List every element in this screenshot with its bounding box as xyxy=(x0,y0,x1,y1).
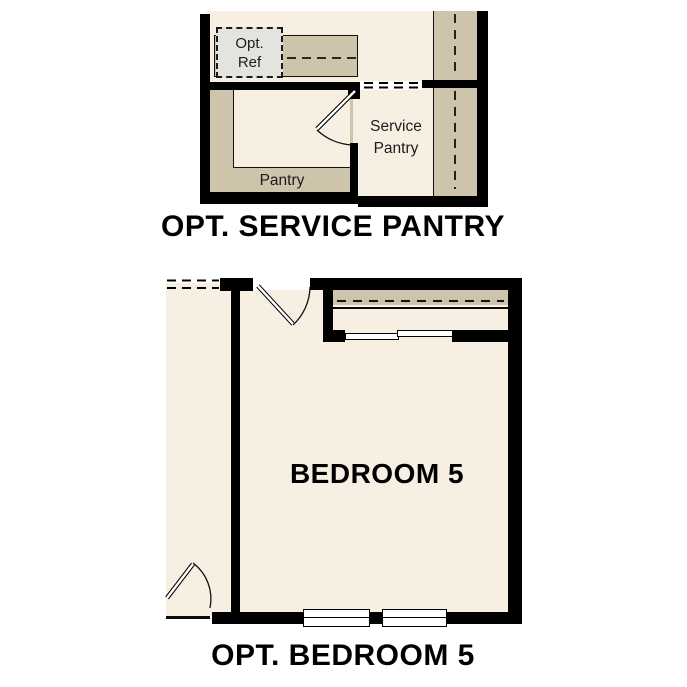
closet-bypass-door-1 xyxy=(345,333,399,340)
hallway-bottom-edge xyxy=(166,616,210,619)
wall-divider-right xyxy=(422,80,477,88)
hallway-floor xyxy=(166,283,231,616)
wall-right xyxy=(508,278,522,624)
right-cabinet-run xyxy=(433,11,477,197)
wall-kitchen-divider xyxy=(200,82,360,90)
wall-left xyxy=(200,14,210,204)
closet-wall-bottom-left xyxy=(332,330,345,342)
wall-bottom-left xyxy=(200,192,358,204)
door-hinge-jamb xyxy=(348,90,360,99)
window-2-pane xyxy=(383,610,446,618)
pantry-label: Pantry xyxy=(260,170,305,192)
wall-bottom-right xyxy=(358,196,488,207)
service-pantry-label-line2: Pantry xyxy=(370,138,422,160)
floorplan-canvas: Opt. Ref Service Pantry Pantry OPT. SERV… xyxy=(0,0,687,687)
opt-ref-label-line2: Ref xyxy=(238,53,261,72)
closet-wall-bottom-right xyxy=(452,330,508,342)
wall-top xyxy=(310,278,522,290)
window-2 xyxy=(382,609,447,627)
window-1-pane xyxy=(304,610,369,618)
opt-bedroom-5-plan: BEDROOM 5 OPT. BEDROOM 5 xyxy=(0,260,687,687)
bedroom-label: BEDROOM 5 xyxy=(290,458,464,490)
service-pantry-plan-title: OPT. SERVICE PANTRY xyxy=(161,210,505,244)
wall-left xyxy=(231,291,240,612)
closet-bypass-door-2 xyxy=(397,330,453,337)
wall-top-left-segment xyxy=(220,278,253,291)
wall-service-pantry-left xyxy=(350,143,358,198)
closet-shelf xyxy=(333,290,508,305)
opt-ref-label-line1: Opt. xyxy=(235,34,263,53)
service-pantry-label-line1: Service xyxy=(370,116,422,138)
window-1 xyxy=(303,609,370,627)
cased-opening-gap xyxy=(360,81,422,90)
closet-rod xyxy=(333,307,508,309)
opt-service-pantry-plan: Opt. Ref Service Pantry Pantry OPT. SERV… xyxy=(0,0,687,250)
service-pantry-label: Service Pantry xyxy=(370,116,422,160)
opt-ref-box: Opt. Ref xyxy=(216,27,283,78)
bedroom-plan-title: OPT. BEDROOM 5 xyxy=(211,639,475,673)
pantry-floor xyxy=(233,88,350,168)
wall-right xyxy=(477,11,488,207)
